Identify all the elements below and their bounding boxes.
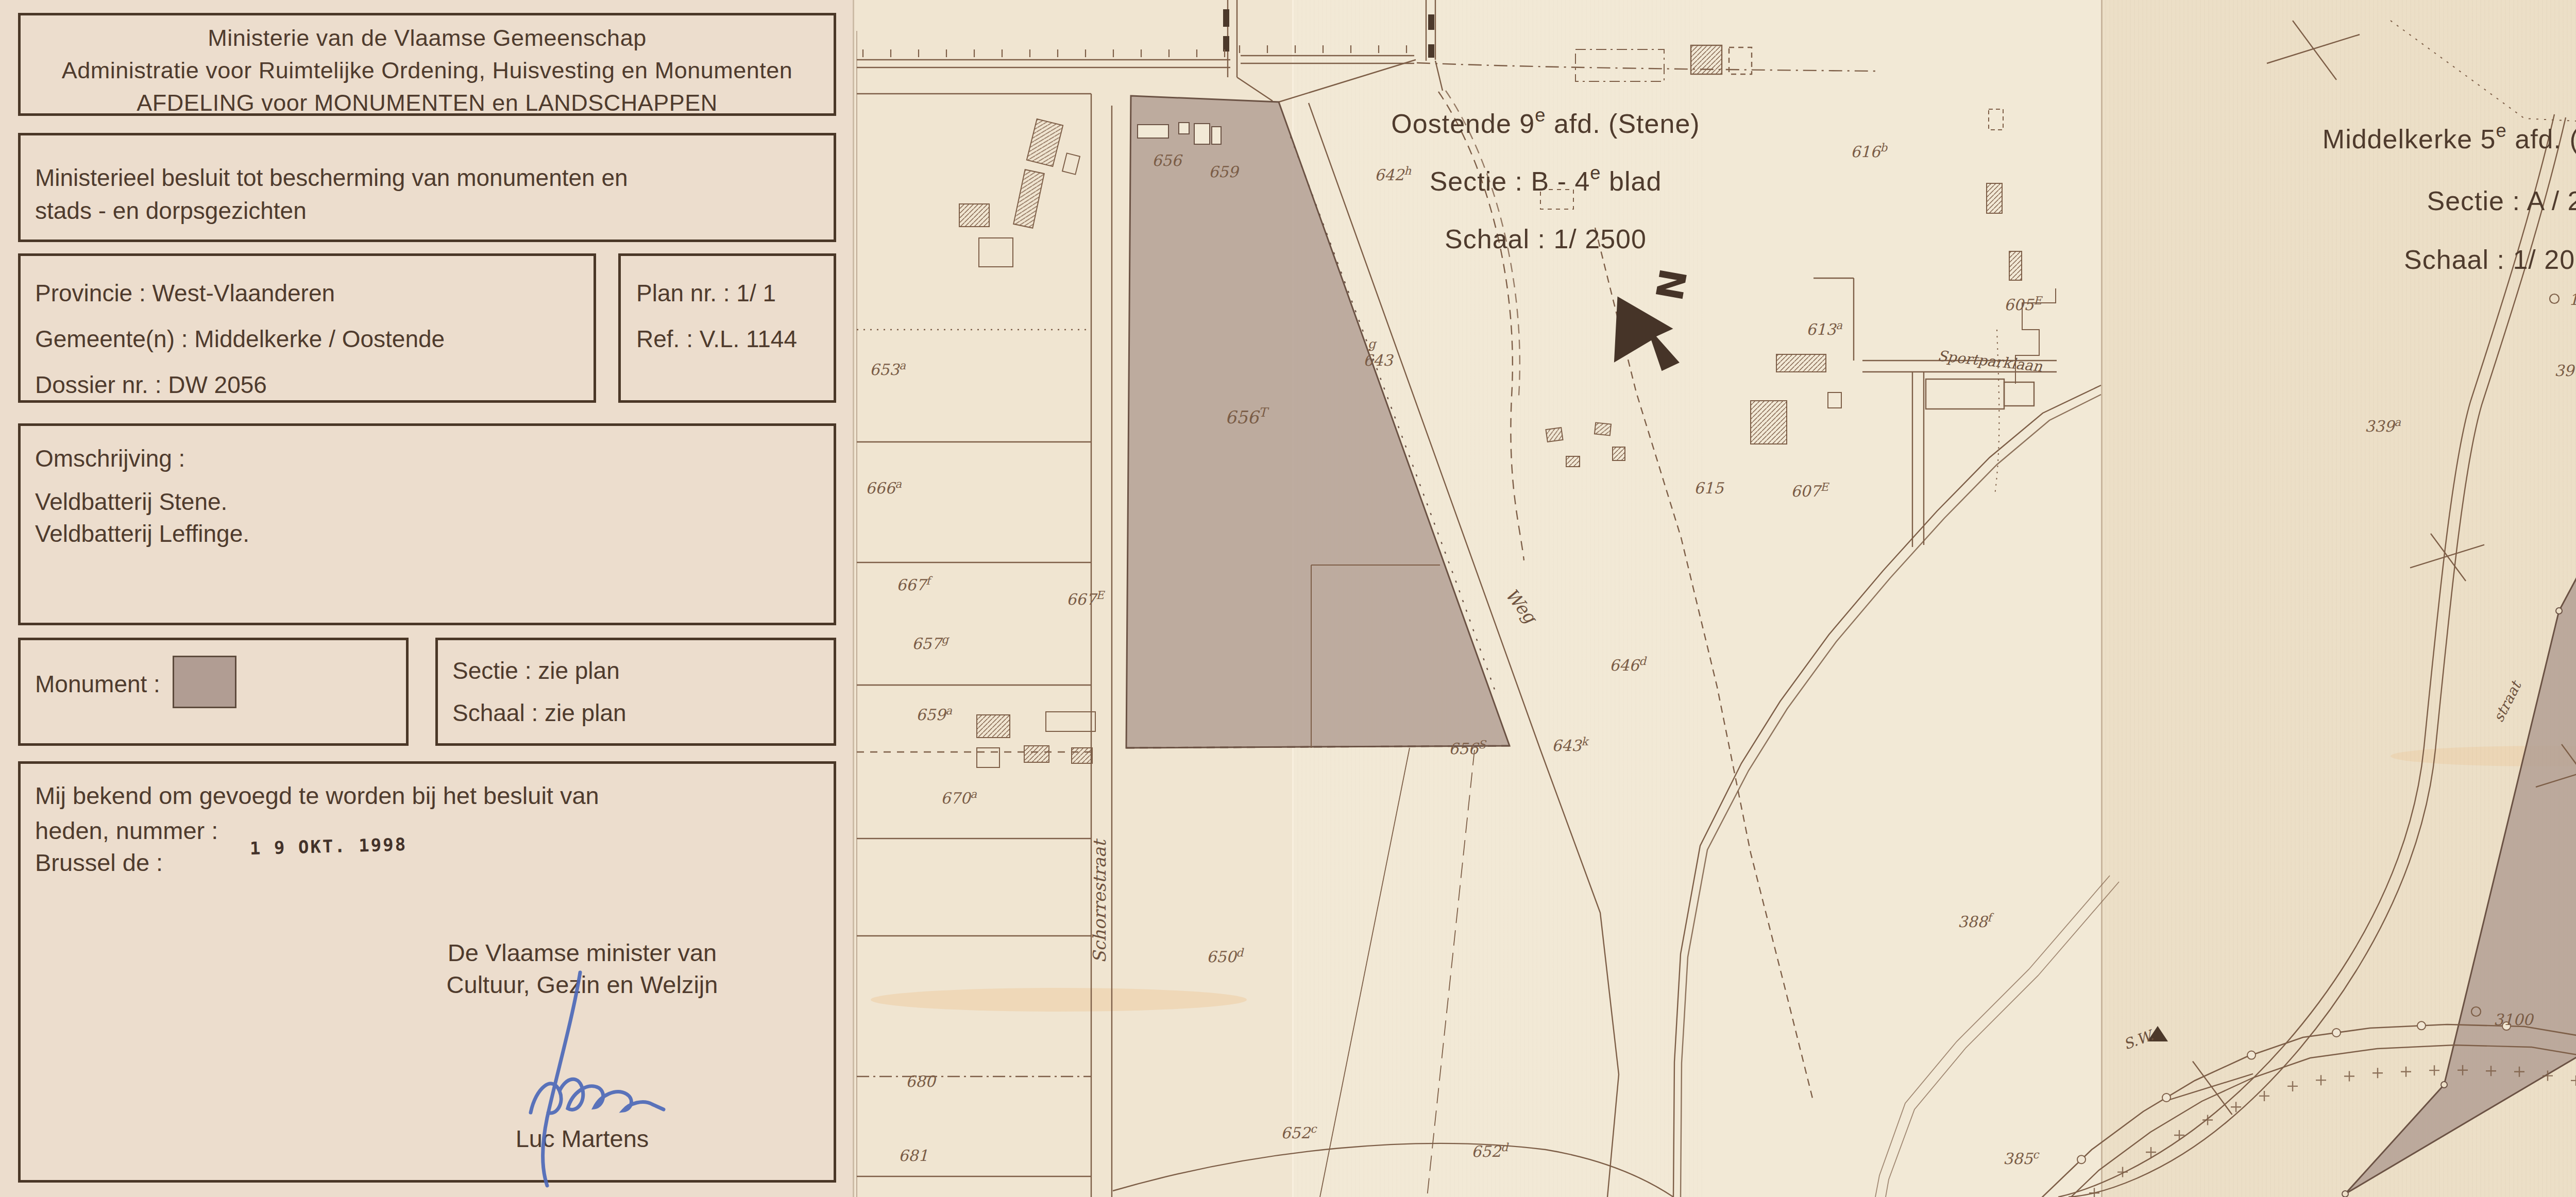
survey-cross <box>2431 534 2466 581</box>
survey-point-circle <box>2550 294 2559 303</box>
parcel-label: 396a <box>2554 360 2576 380</box>
parcel-label: 667E <box>1066 589 1105 608</box>
parcel-label: 646d <box>1609 655 1647 674</box>
hedge-plus-mark <box>2316 1075 2326 1085</box>
hedge-plus-mark <box>2287 1081 2298 1091</box>
parcel-label: 667f <box>896 574 933 594</box>
street-label: Sportparklaan <box>1937 347 2043 375</box>
survey-cross <box>2193 1062 2232 1115</box>
hedge-plus-mark <box>2372 1068 2383 1078</box>
left-map-labels: 656659642hg643656T653a666a667f667E657g65… <box>866 141 2157 1168</box>
hedge-plus-mark <box>2429 1065 2439 1075</box>
parcel-label: 666a <box>866 477 902 497</box>
parcel-label: 643k <box>1552 735 1589 755</box>
parcel-label: 656S <box>1449 738 1487 758</box>
minister-signature <box>531 972 664 1186</box>
parcel-label: 613a <box>1806 319 1842 338</box>
map-generated-detail <box>863 21 2576 1115</box>
map-title-line: Middelkerke 5e​ afd. (Leffinge) <box>2323 120 2576 154</box>
parcel-label: 650d <box>1207 946 1244 966</box>
hedge-plus-mark <box>2344 1071 2354 1082</box>
street-label: Schorrestraat <box>1089 839 1110 963</box>
parcel-label: 653a <box>870 359 906 379</box>
parcel-label: 659 <box>1209 163 1240 181</box>
map-title-line: Schaal : 1/ 2500 <box>1445 224 1647 254</box>
parcel-label: 659a <box>916 704 952 724</box>
parcel-label: 643 <box>1363 351 1394 369</box>
hedge-plus-mark <box>2089 1188 2099 1197</box>
map-titles: Oostende 9e​ afd. (Stene)Sectie : B - 4e… <box>1391 105 2576 275</box>
map-title-line: Sectie : B - 4e​ blad <box>1430 162 1662 196</box>
parcel-label: 388f <box>1958 911 1994 931</box>
north-letter: N <box>1647 265 1694 303</box>
parcel-label: 339a <box>2365 416 2401 435</box>
road-survey-marker <box>2077 1155 2086 1164</box>
hedge-plus-mark <box>2259 1091 2269 1101</box>
road-survey-marker <box>2332 1029 2341 1037</box>
parcel-label: 607E <box>1791 481 1829 500</box>
parcel-label: 615 <box>1694 479 1724 497</box>
parcel-label: g <box>1368 337 1377 351</box>
parcel-label: 652d <box>1471 1141 1509 1160</box>
road-survey-marker <box>2247 1051 2256 1059</box>
hedge-plus-mark <box>2117 1167 2128 1177</box>
map-title-line: Schaal : 1/ 2000 <box>2404 245 2576 275</box>
north-arrow: N <box>1587 265 1694 389</box>
parcel-label: 670a <box>941 788 977 807</box>
parcel-label: 16400 <box>2569 290 2576 309</box>
hedge-plus-mark <box>2401 1067 2411 1077</box>
cadastral-map-drawing: 656659642hg643656T653a666a667f667E657g65… <box>0 0 2576 1197</box>
map-title-line: Oostende 9e​ afd. (Stene) <box>1391 105 1700 139</box>
road-survey-marker <box>2162 1093 2171 1102</box>
right-map-monument-area <box>2342 134 2576 1197</box>
parcel-label: 616b <box>1851 141 1888 161</box>
survey-cross <box>2293 21 2336 80</box>
north-arrows: NN <box>1587 265 2576 683</box>
parcel-label: 681 <box>899 1147 928 1165</box>
street-label: S.W. <box>2121 1027 2157 1053</box>
scanned-map-sheet: Ministerie van de Vlaamse Gemeenschap Ad… <box>0 0 2576 1197</box>
parcel-label: 656 <box>1152 151 1183 169</box>
hedge-plus-mark <box>2174 1130 2184 1140</box>
map-title-line: Sectie : A / 2 <box>2427 186 2576 216</box>
parcel-label: 605E <box>2004 294 2043 314</box>
street-label: Weg <box>1501 584 1543 628</box>
parcel-label: 642h <box>1375 164 1411 184</box>
road-survey-marker <box>2417 1021 2426 1030</box>
parcel-label: 652c <box>1281 1122 1317 1142</box>
street-label: straat <box>2490 677 2526 725</box>
parcel-label: 657g <box>912 633 950 653</box>
parcel-label: 3100 <box>2494 1011 2534 1029</box>
parcel-label: 680 <box>906 1072 937 1090</box>
parcel-label: 385c <box>2003 1148 2040 1168</box>
hedge-plus-mark <box>2571 1075 2576 1086</box>
